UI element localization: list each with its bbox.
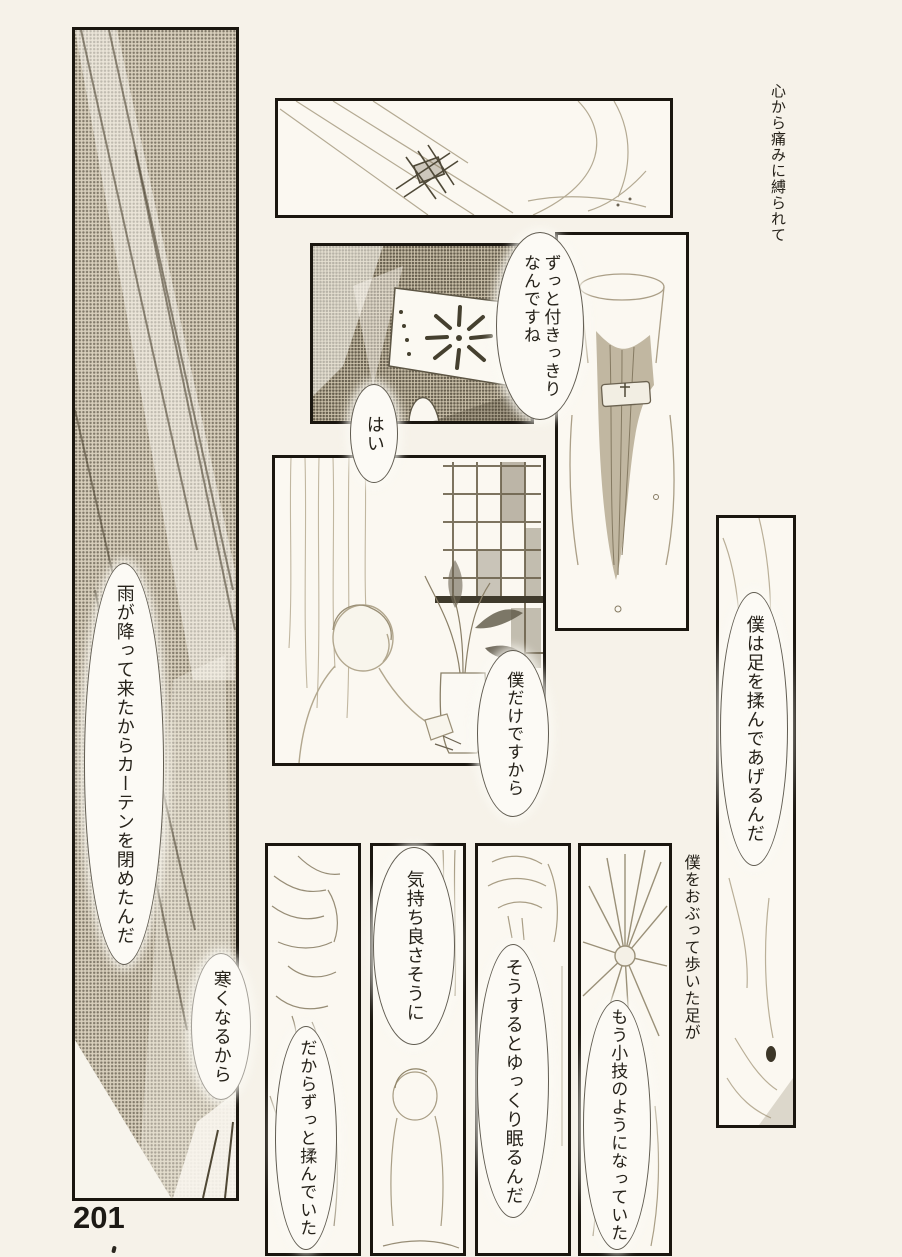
- speech-bubble-attend: ずっと付きっきり なんですね: [496, 232, 584, 420]
- speech-bubble-feels-good: 気持ち良さそうに: [373, 847, 455, 1045]
- speech-text: 僕だけですから: [503, 671, 523, 797]
- speech-bubble-only-me: 僕だけですから: [477, 650, 549, 817]
- page-number: 201: [73, 1200, 125, 1236]
- speech-text: 雨が降って来たからカーテンを閉めたんだ: [113, 584, 135, 945]
- speech-text: もう小技のようになっていた: [607, 1008, 627, 1242]
- caption-narration-feet: 僕をおぶって歩いた足が: [674, 854, 708, 1059]
- speech-text: 寒くなるから: [210, 970, 232, 1084]
- speech-bubble-falls-asleep: そうするとゆっくり眠るんだ: [477, 944, 549, 1218]
- speech-text: そうするとゆっくり眠るんだ: [502, 958, 524, 1205]
- speech-bubble-cold: 寒くなるから: [191, 953, 251, 1100]
- speech-bubble-yes: はい: [350, 384, 398, 483]
- speech-text: だからずっと揉んでいた: [296, 1039, 316, 1237]
- speech-text: はい: [363, 415, 385, 453]
- panel-top-room: [275, 98, 673, 218]
- speech-bubble-rain: 雨が降って来たからカーテンを閉めたんだ: [84, 563, 164, 965]
- speech-bubble-kept-rubbing: だからずっと揉んでいた: [275, 1026, 337, 1250]
- caption-narration-top: 心から痛みに縛られて: [761, 83, 795, 263]
- speech-text: ずっと付きっきり なんですね: [520, 254, 561, 398]
- speech-text: 僕は足を揉んであげるんだ: [743, 615, 765, 843]
- speech-text: 気持ち良さそうに: [403, 870, 425, 1022]
- manga-page: 心から痛みに縛られて 僕をおぶって歩いた足が ずっと付きっきり なんですね はい…: [0, 0, 902, 1257]
- caption-text: 僕をおぶって歩いた足が: [681, 854, 700, 1059]
- speech-bubble-second-nature: もう小技のようになっていた: [583, 1000, 651, 1250]
- panel-art-room: [278, 101, 670, 215]
- caption-text: 心から痛みに縛られて: [769, 83, 787, 263]
- ink-mark: [111, 1246, 117, 1254]
- speech-bubble-massage-feet: 僕は足を揉んであげるんだ: [720, 592, 788, 866]
